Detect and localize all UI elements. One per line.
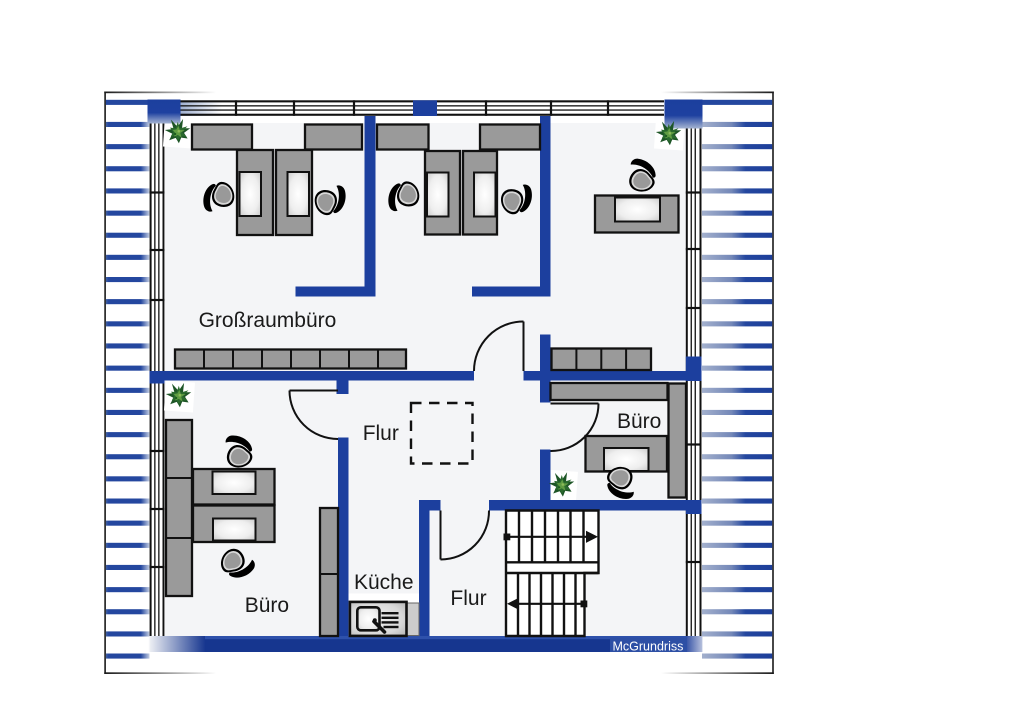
- svg-text:Flur: Flur: [450, 587, 486, 610]
- svg-text:Küche: Küche: [354, 571, 414, 594]
- svg-text:Büro: Büro: [617, 410, 661, 433]
- svg-text:McGrundriss: McGrundriss: [613, 640, 684, 654]
- svg-text:Büro: Büro: [245, 594, 289, 617]
- svg-text:Großraumbüro: Großraumbüro: [199, 309, 337, 332]
- svg-text:Flur: Flur: [363, 422, 399, 445]
